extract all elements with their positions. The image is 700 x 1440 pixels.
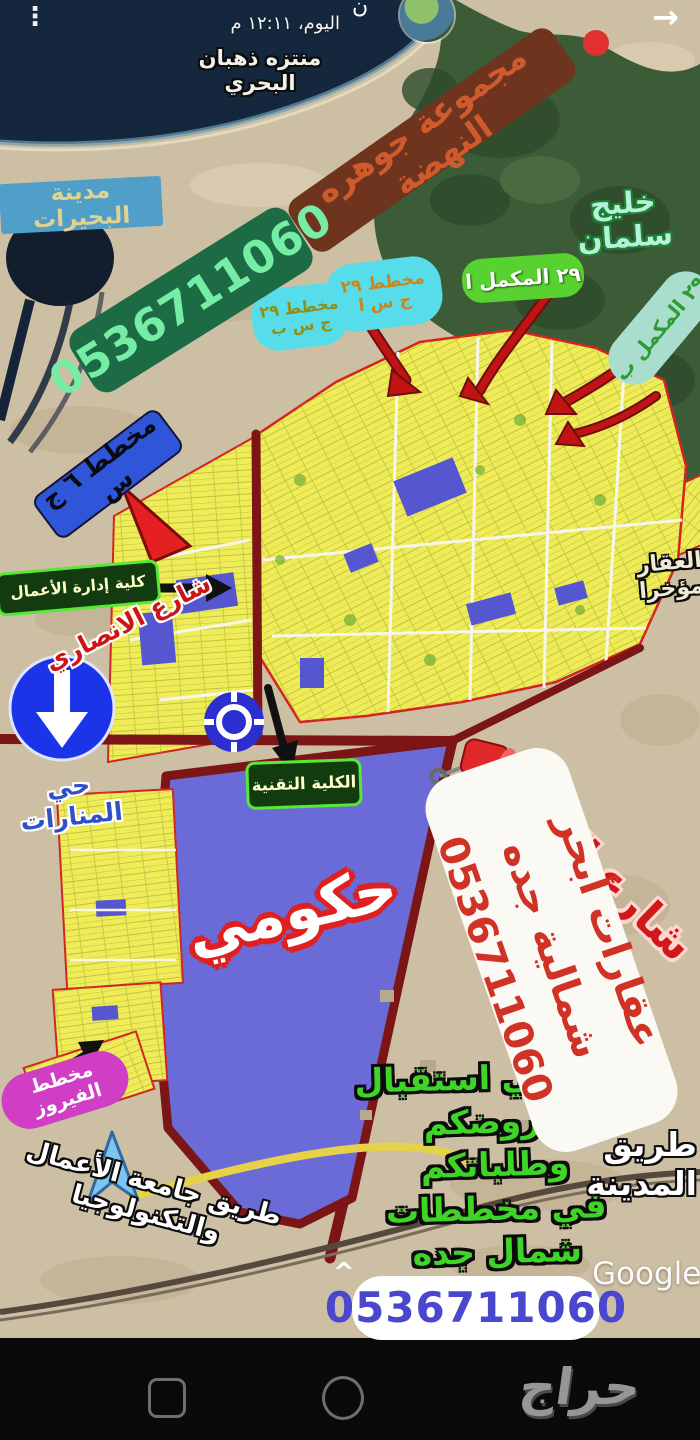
dhahban-park-label: منتزه ذهبان البحري — [185, 46, 335, 96]
technical-college-label: الكلية التقنية — [245, 758, 363, 810]
avatar[interactable] — [400, 0, 454, 42]
phone-pill-bottom: 0536711060 — [352, 1276, 600, 1340]
complement-29a-pill: ٢٩ المكمل ا — [461, 252, 586, 304]
bottom-nav-bar: حراج — [0, 1338, 700, 1440]
salman-gulf-label: خليج سلمان — [546, 181, 700, 260]
home-circle-icon[interactable] — [322, 1376, 364, 1420]
kebab-menu-icon[interactable]: ⋮ — [22, 2, 48, 32]
roundabout — [204, 692, 264, 752]
chat-header: ⋮ اليوم، ١٢:١١ م ن → — [0, 0, 700, 48]
phone-screen: مدينة البحيرات منتزه ذهبان البحري خليج س… — [0, 0, 700, 1440]
recents-square-icon[interactable] — [148, 1378, 186, 1418]
chat-timestamp: اليوم، ١٢:١١ م — [200, 13, 340, 34]
lakes-city-label: مدينة البحيرات — [0, 176, 163, 234]
back-arrow-icon[interactable]: → — [652, 0, 679, 36]
red-dot — [583, 30, 609, 56]
haraj-logo: حراج — [466, 1358, 694, 1416]
chat-title-fragment: ن — [352, 0, 368, 19]
right-edge-partial-label: العقار مؤخرا — [636, 543, 700, 605]
